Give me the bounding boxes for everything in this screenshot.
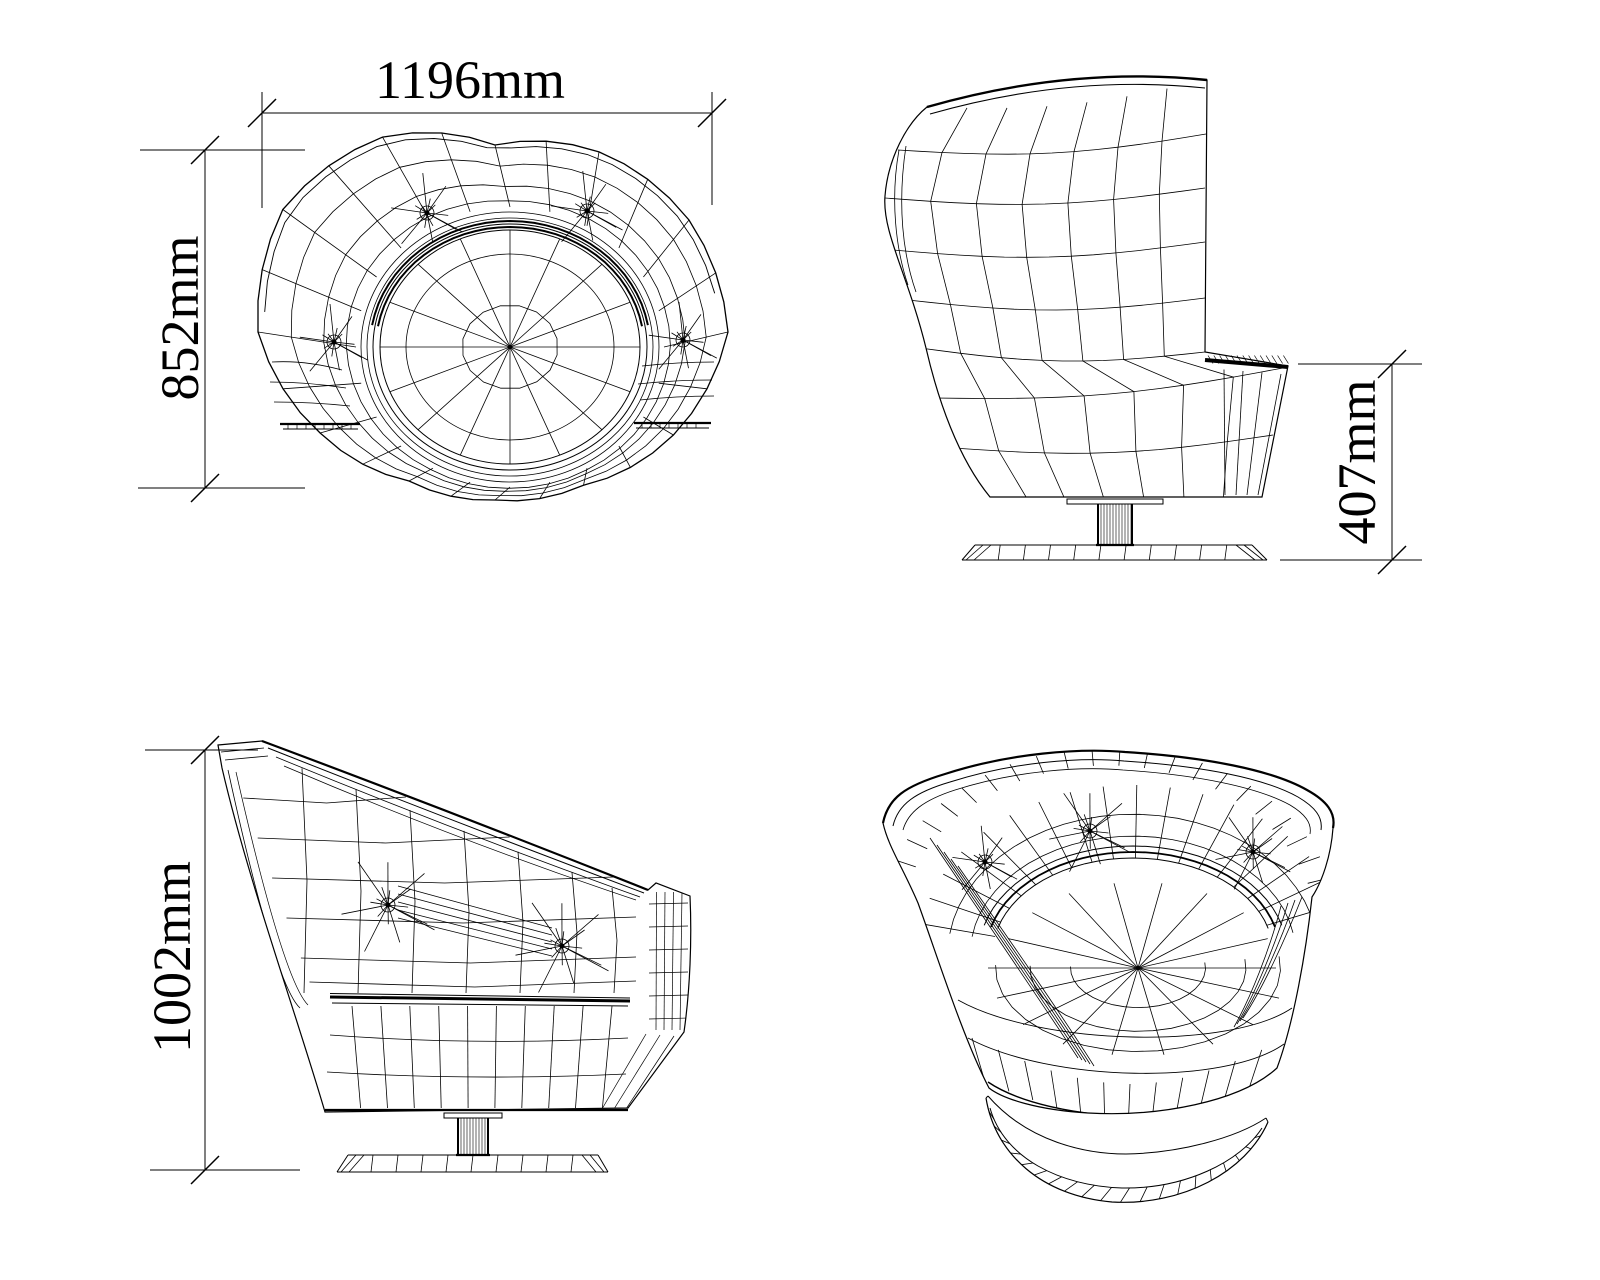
view-top-plan (258, 133, 728, 501)
drawing-canvas: 1196mm 852mm 407mm 1002mm (0, 0, 1600, 1280)
dim-plan-depth-label: 852mm (150, 235, 210, 400)
dim-seat-height-label: 407mm (1327, 379, 1387, 544)
view-perspective (883, 747, 1339, 1202)
dimension-annotations: 1196mm 852mm 407mm 1002mm (138, 50, 1422, 1184)
dim-plan-width-label: 1196mm (375, 50, 565, 110)
dim-total-height-label: 1002mm (142, 861, 202, 1053)
view-side-profile-left (218, 741, 691, 1172)
technical-drawing: 1196mm 852mm 407mm 1002mm (0, 0, 1600, 1280)
view-side-profile-right (885, 76, 1289, 560)
